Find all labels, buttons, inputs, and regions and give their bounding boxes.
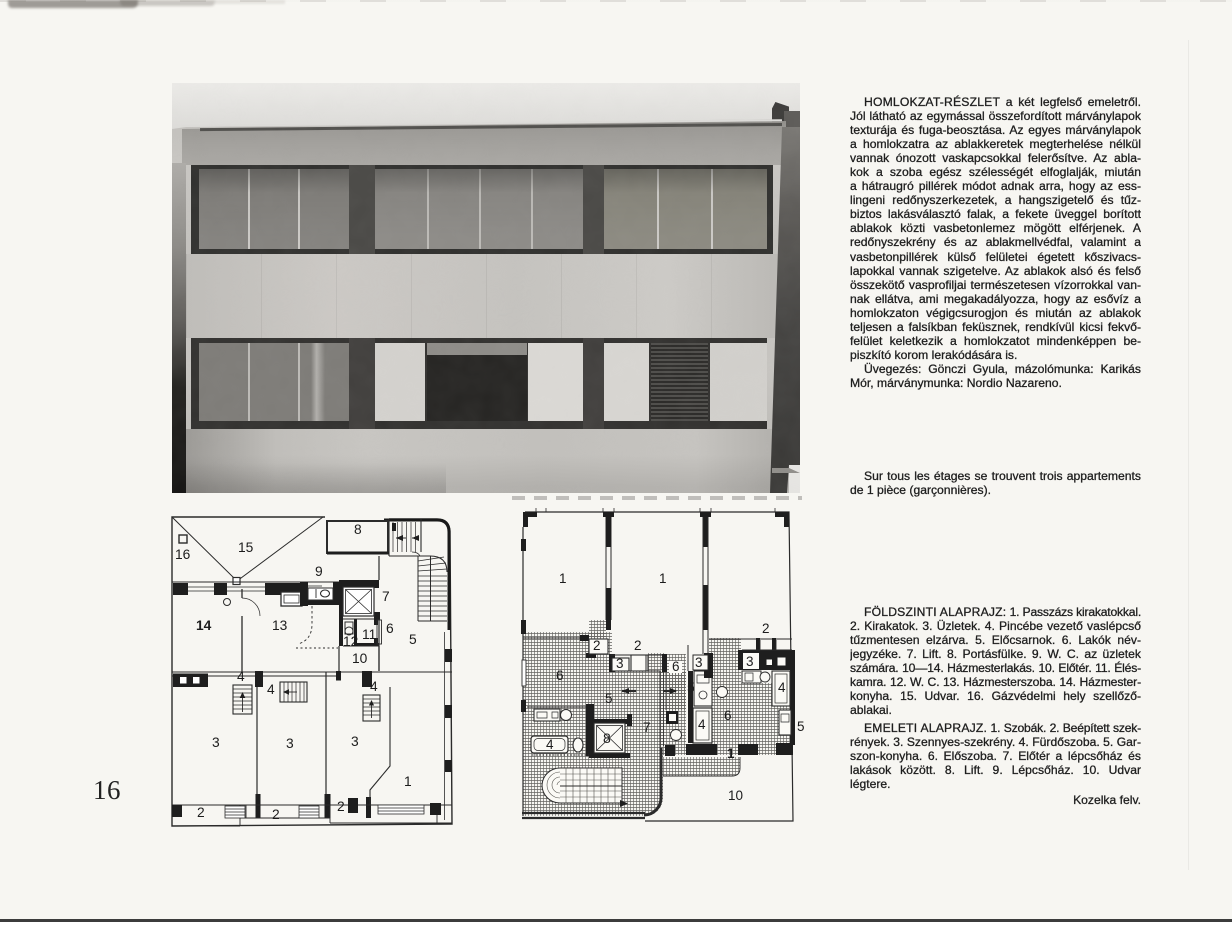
svg-text:4: 4: [698, 717, 706, 732]
svg-text:4: 4: [546, 737, 554, 752]
svg-text:8: 8: [603, 730, 611, 746]
svg-text:2: 2: [337, 799, 345, 814]
svg-text:5: 5: [687, 680, 695, 695]
svg-text:15: 15: [238, 540, 254, 555]
svg-text:3: 3: [351, 734, 359, 749]
svg-text:6: 6: [386, 621, 394, 636]
svg-text:4: 4: [237, 669, 245, 684]
svg-text:3: 3: [695, 655, 703, 670]
svg-text:8: 8: [354, 522, 362, 537]
svg-text:5: 5: [409, 632, 417, 647]
svg-text:2: 2: [762, 621, 770, 636]
svg-text:1: 1: [404, 774, 412, 789]
svg-text:7: 7: [382, 589, 390, 604]
svg-text:12: 12: [343, 634, 358, 649]
svg-text:4: 4: [778, 680, 786, 695]
svg-text:5: 5: [605, 691, 613, 706]
svg-text:3: 3: [746, 654, 754, 669]
svg-text:13: 13: [272, 618, 288, 633]
svg-text:3: 3: [286, 736, 294, 751]
svg-text:9: 9: [315, 564, 323, 579]
svg-text:10: 10: [352, 651, 368, 666]
svg-text:6: 6: [556, 668, 564, 683]
svg-text:2: 2: [197, 805, 205, 820]
svg-text:6: 6: [672, 659, 680, 674]
svg-text:2: 2: [593, 638, 601, 653]
svg-text:1: 1: [659, 571, 667, 586]
svg-text:10: 10: [728, 788, 743, 803]
svg-text:5: 5: [797, 719, 805, 734]
svg-text:1: 1: [727, 746, 735, 761]
svg-text:16: 16: [175, 547, 191, 562]
svg-text:4: 4: [267, 682, 275, 697]
svg-text:7: 7: [643, 720, 651, 735]
svg-text:6: 6: [724, 708, 732, 723]
svg-text:3: 3: [616, 656, 624, 671]
svg-text:1: 1: [559, 571, 567, 586]
svg-text:2: 2: [634, 638, 642, 653]
svg-text:2: 2: [272, 807, 280, 822]
svg-text:14: 14: [196, 618, 212, 633]
svg-text:3: 3: [212, 735, 220, 750]
svg-text:11: 11: [362, 627, 376, 642]
svg-text:4: 4: [370, 679, 378, 694]
